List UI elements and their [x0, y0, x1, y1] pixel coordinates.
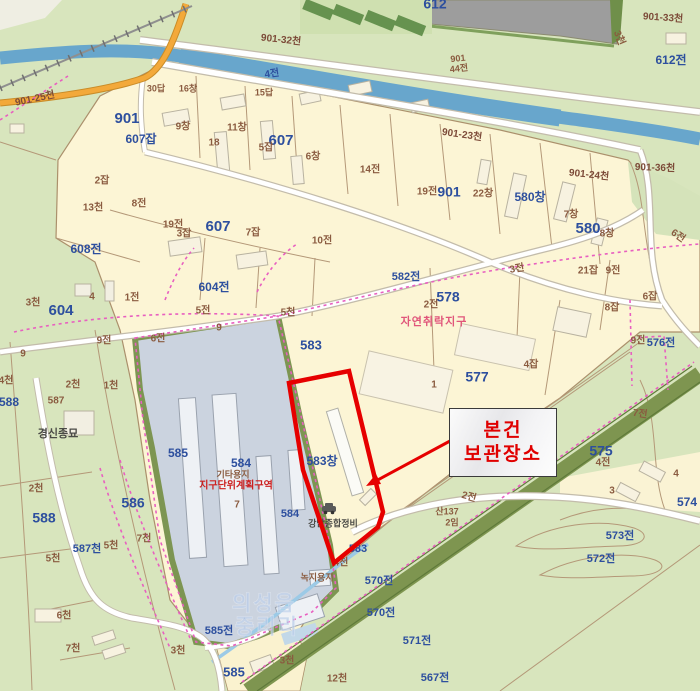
- parcel-label: 7잡: [246, 227, 262, 239]
- parcel-label: 4잡: [524, 359, 540, 371]
- parcel-label: 582전: [392, 269, 420, 283]
- parcel-label: 572전: [587, 551, 615, 565]
- parcel-label: 22창: [473, 187, 494, 200]
- parcel-label: 576전: [647, 335, 675, 349]
- parcel-label: 15답: [255, 86, 274, 97]
- parcel-label: 585: [223, 664, 245, 679]
- parcel-label: 자연취락지구: [401, 314, 468, 328]
- parcel-label: 4: [89, 292, 95, 303]
- parcel-label: 9전: [631, 334, 646, 347]
- parcel-label: 6잡: [643, 291, 659, 303]
- annotation-box: 본건 보관장소: [449, 408, 557, 477]
- parcel-label: 5천: [46, 552, 61, 565]
- parcel-label: 587천: [73, 541, 101, 555]
- annotation-line1: 본건: [484, 420, 523, 442]
- parcel-label: 19전: [417, 185, 437, 198]
- cadastral-map-image: 901-25천901607잡9창11창186075잡6창2잡8전13천19전3잡…: [0, 0, 700, 691]
- parcel-label: 612: [423, 0, 447, 12]
- parcel-label: 607: [205, 218, 230, 235]
- parcel-label: 4전: [596, 456, 611, 469]
- parcel-label: 3천: [280, 654, 295, 667]
- parcel-label: 2천: [29, 482, 44, 495]
- parcel-label: 573전: [606, 528, 634, 542]
- parcel-label: 녹지용지: [300, 571, 333, 582]
- parcel-label: 3: [609, 486, 615, 497]
- parcel-label: 8창: [600, 227, 616, 240]
- parcel-label: 9창: [176, 120, 192, 133]
- parcel-label: 44전: [449, 61, 468, 74]
- parcel-label: 3천: [171, 644, 186, 657]
- annotation-line2: 보관장소: [464, 444, 542, 466]
- parcel-label: 2천: [66, 378, 81, 391]
- parcel-label: 13천: [83, 201, 103, 214]
- parcel-label: 5천: [281, 306, 296, 319]
- parcel-label: 6천: [57, 609, 72, 622]
- parcel-label: 경신종묘: [38, 426, 78, 440]
- parcel-label: 9: [216, 323, 222, 334]
- parcel-label: 의성읍: [232, 593, 296, 616]
- parcel-label: 3잡: [177, 228, 193, 240]
- parcel-label: 574: [677, 495, 697, 509]
- parcel-label: 583창: [306, 453, 337, 468]
- parcel-label: 7: [234, 500, 240, 511]
- parcel-label: 571전: [403, 633, 431, 647]
- parcel-label: 12천: [327, 672, 347, 685]
- parcel-label: 7천: [137, 532, 152, 545]
- parcel-label: 14전: [360, 163, 380, 176]
- greenhouse-strips: [300, 0, 432, 36]
- parcel-label: 578: [436, 289, 460, 305]
- parcel-label: 585: [168, 446, 188, 460]
- parcel-label: 18: [208, 138, 220, 149]
- parcel-label: 586: [121, 495, 145, 511]
- parcel-label: 607잡: [125, 131, 156, 146]
- parcel-label: 4: [673, 469, 679, 480]
- parcel-label: 608전: [70, 241, 101, 256]
- parcel-label: 8전: [132, 197, 147, 210]
- parcel-label: 16창: [179, 82, 198, 93]
- parcel-label: 10전: [312, 234, 332, 247]
- parcel-label: 6창: [306, 150, 322, 163]
- parcel-label: 중리리: [235, 616, 299, 639]
- parcel-label: 570전: [365, 573, 393, 587]
- parcel-label: 4천: [0, 374, 13, 387]
- parcel-label: 587: [48, 396, 65, 407]
- parcel-label: 6전: [151, 332, 166, 345]
- parcel-label: 7천: [66, 642, 81, 655]
- parcel-label: 11창: [227, 121, 248, 134]
- parcel-label: 612전: [655, 52, 686, 67]
- parcel-label: 577: [465, 369, 489, 385]
- parcel-label: 3천: [26, 296, 41, 309]
- parcel-label: 570전: [367, 605, 395, 619]
- parcel-label: 8잡: [605, 302, 621, 314]
- parcel-label: 1: [431, 380, 437, 391]
- parcel-label: 901: [114, 110, 139, 127]
- parcel-label: 5천: [104, 539, 119, 552]
- parcel-label: 9전: [97, 334, 112, 347]
- parcel-label: 9전: [606, 264, 621, 277]
- parcel-label: 9: [20, 349, 26, 360]
- parcel-label: 575: [589, 443, 613, 459]
- parcel-label: 584: [281, 508, 300, 520]
- parcel-label: 588: [0, 395, 19, 409]
- parcel-label: 산137: [435, 505, 458, 516]
- parcel-label: 21잡: [578, 265, 599, 277]
- parcel-label: 30답: [147, 82, 166, 93]
- parcel-label: 지구단위계획구역: [199, 479, 273, 492]
- parcel-label: 5잡: [259, 142, 275, 154]
- parcel-label: 1천: [104, 379, 119, 392]
- map-canvas[interactable]: 901-25천901607잡9창11창186075잡6창2잡8전13천19전3잡…: [0, 0, 700, 691]
- parcel-label: 567전: [421, 670, 449, 684]
- parcel-label: 901: [437, 184, 461, 200]
- parcel-label: 580: [575, 220, 600, 237]
- parcel-label: 588: [32, 510, 56, 526]
- parcel-label: 585전: [205, 623, 233, 637]
- parcel-label: 1전: [125, 291, 140, 304]
- parcel-label: 2임: [445, 516, 458, 527]
- parcel-label: 7창: [564, 208, 580, 221]
- parcel-label: 5전: [196, 304, 211, 317]
- parcel-label: 583: [300, 337, 322, 352]
- parcel-label: 604: [48, 302, 74, 319]
- parcel-label: 강남종합정비: [308, 517, 358, 528]
- parcel-label: 580창: [514, 189, 545, 204]
- parcel-label: 2잡: [95, 175, 111, 187]
- parcel-label: 기타용지: [216, 468, 249, 479]
- parcel-label: 604전: [198, 279, 229, 294]
- parcel-label: 584: [231, 456, 251, 470]
